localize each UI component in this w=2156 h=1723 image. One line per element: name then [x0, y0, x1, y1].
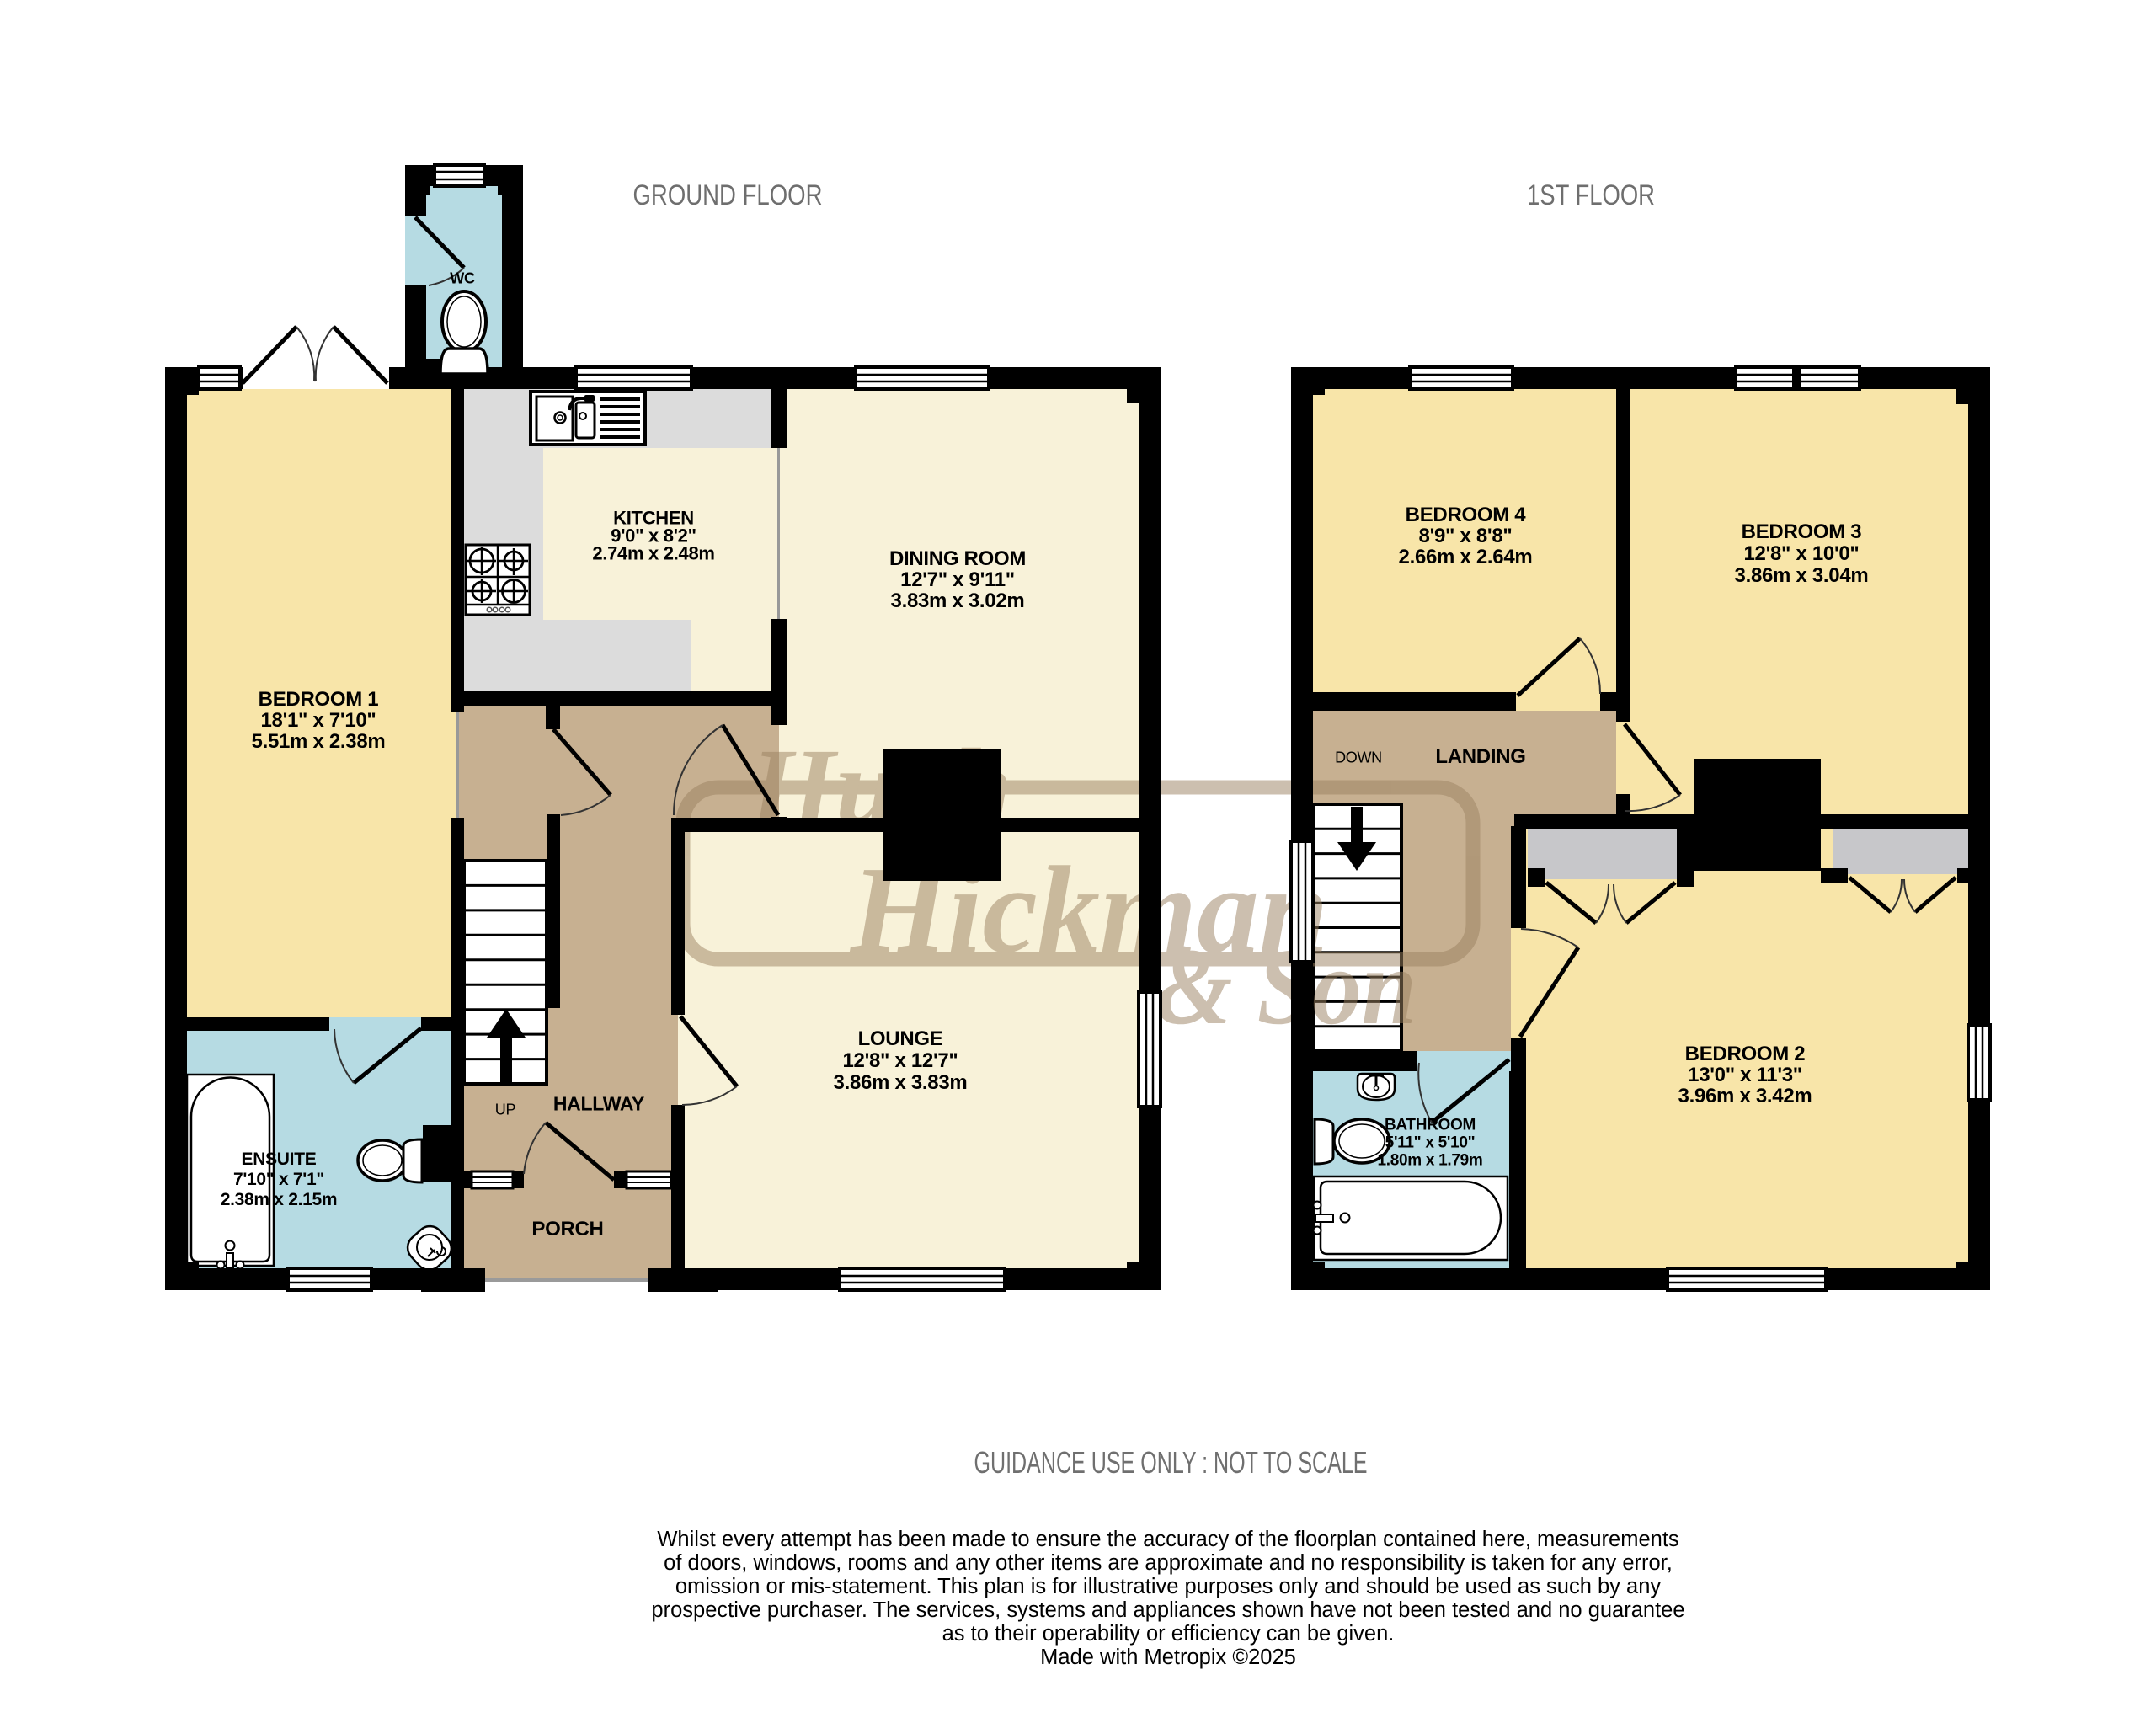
- svg-text:DINING ROOM12'7" x 9'11"3.83m: DINING ROOM12'7" x 9'11"3.83m x 3.02m: [889, 547, 1026, 612]
- svg-text:PORCH: PORCH: [531, 1218, 603, 1240]
- svg-text:WC: WC: [450, 270, 475, 287]
- svg-text:& Son: & Son: [1155, 926, 1417, 1048]
- svg-text:GROUND FLOOR: GROUND FLOOR: [633, 179, 823, 211]
- svg-text:HALLWAY: HALLWAY: [553, 1092, 644, 1114]
- svg-text:BEDROOM 213'0" x 11'3"3.96m: BEDROOM 213'0" x 11'3"3.96m x 3.42m: [1678, 1043, 1812, 1107]
- svg-text:UP: UP: [495, 1102, 516, 1118]
- svg-text:LANDING: LANDING: [1435, 745, 1525, 768]
- svg-text:GUIDANCE USE ONLY : NOT TO SCA: GUIDANCE USE ONLY : NOT TO SCALE: [974, 1445, 1368, 1480]
- svg-text:DOWN: DOWN: [1335, 749, 1382, 766]
- svg-text:BEDROOM 118'1" x 7'10"5.51m: BEDROOM 118'1" x 7'10"5.51m x 2.38m: [252, 688, 386, 753]
- svg-text:BATHROOM5'11" x 5'10"1.80m x: BATHROOM5'11" x 5'10"1.80m x 1.79m: [1378, 1116, 1483, 1169]
- svg-text:BEDROOM 312'8" x 10'0"3.86m: BEDROOM 312'8" x 10'0"3.86m x 3.04m: [1735, 520, 1869, 587]
- svg-text:1ST FLOOR: 1ST FLOOR: [1527, 179, 1655, 211]
